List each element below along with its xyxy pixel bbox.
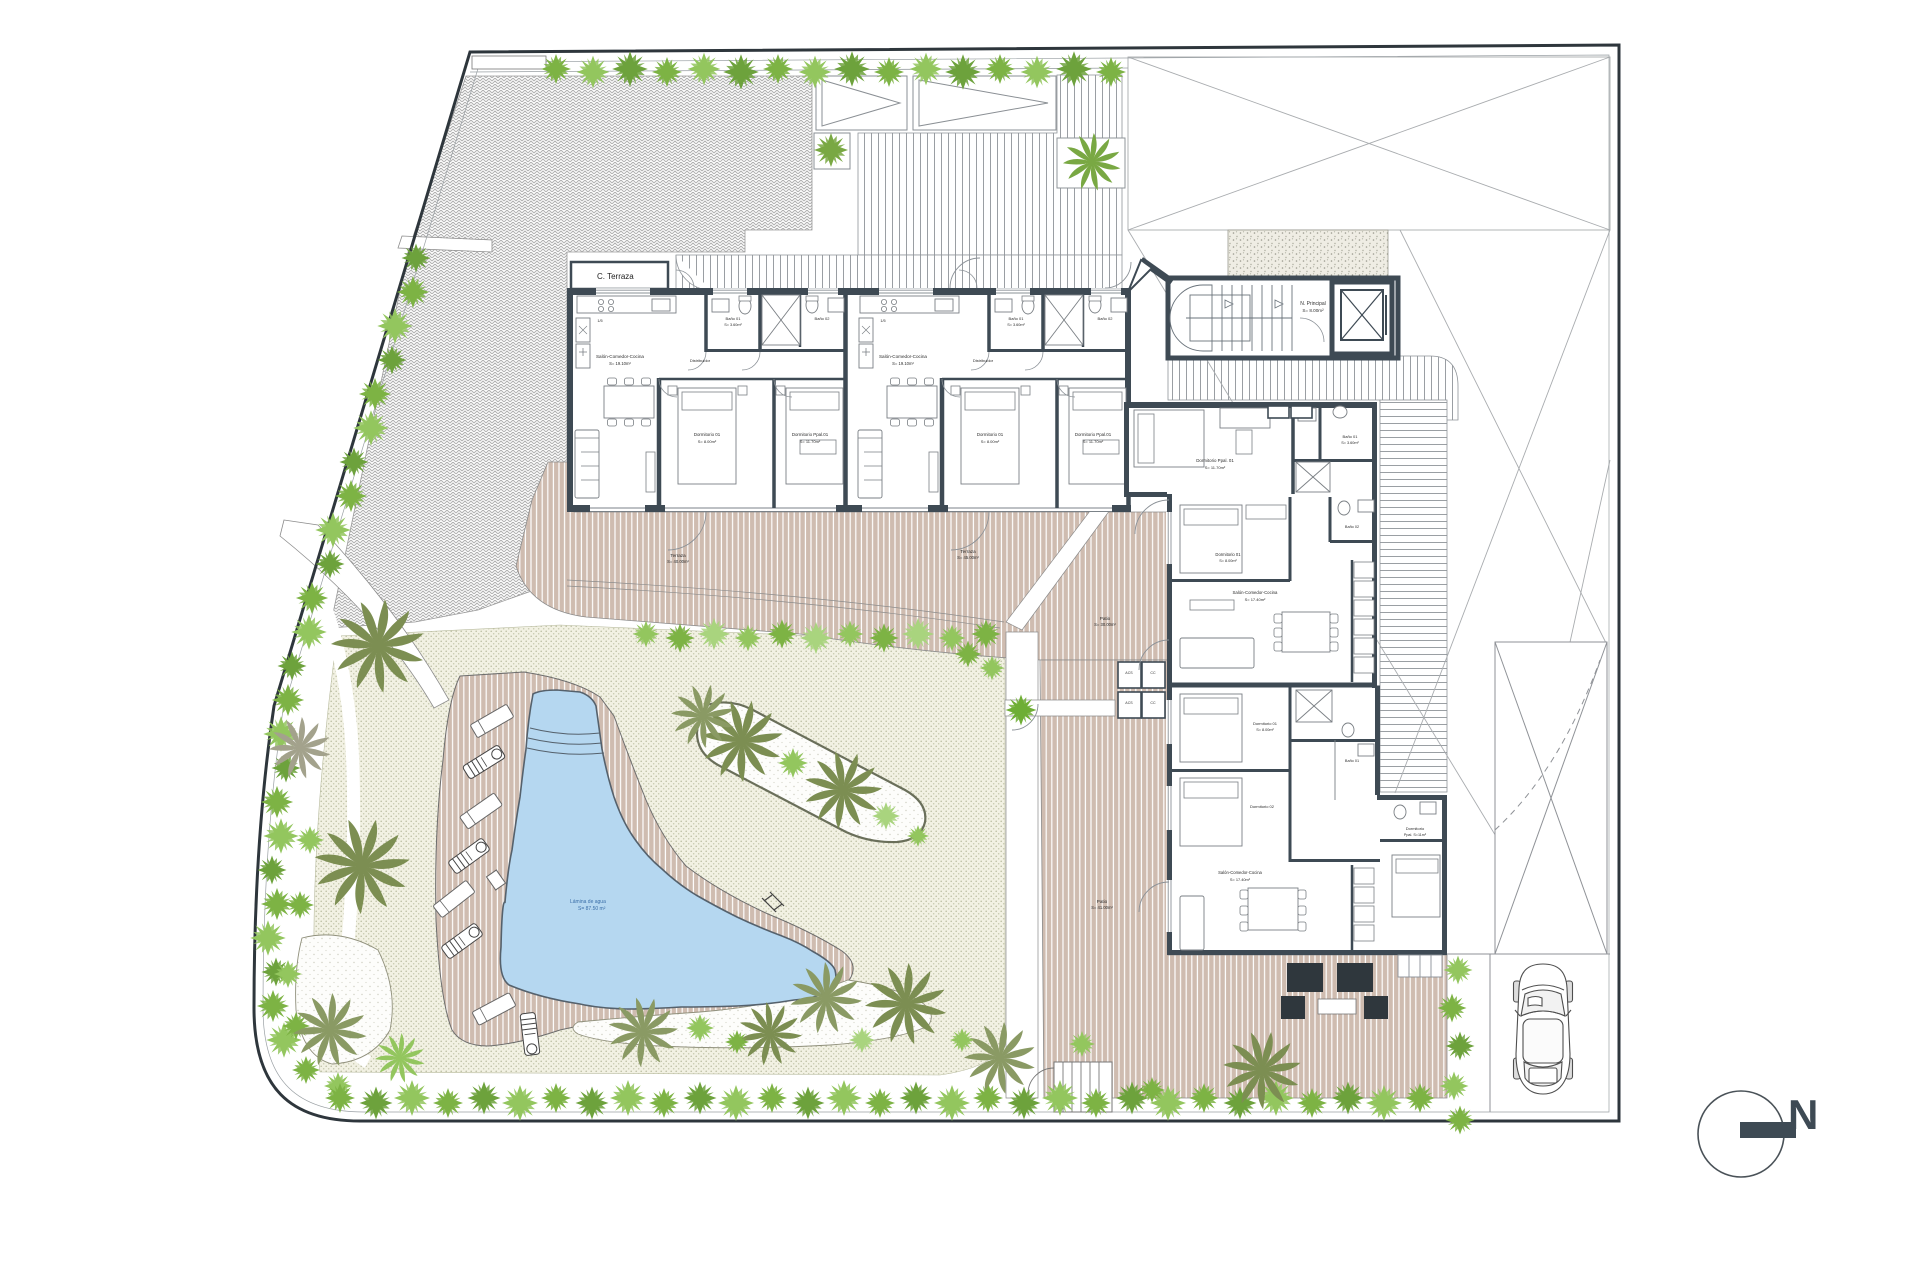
svg-text:S= 3.60m²: S= 3.60m²	[724, 323, 742, 327]
svg-text:Baño 01: Baño 01	[1343, 434, 1359, 439]
svg-text:S= 8.00m²: S= 8.00m²	[1219, 559, 1237, 563]
svg-text:Patio: Patio	[1100, 616, 1111, 621]
svg-text:Baño 01: Baño 01	[1009, 316, 1025, 321]
svg-text:Baño 02: Baño 02	[1345, 525, 1359, 529]
svg-text:S= 87.50 m²: S= 87.50 m²	[578, 906, 606, 912]
svg-text:S= 11.70m²: S= 11.70m²	[1083, 439, 1104, 444]
svg-text:CC: CC	[1150, 671, 1156, 675]
svg-text:Dormitorio 02: Dormitorio 02	[1250, 804, 1275, 809]
svg-text:Dormitorio Ppal.01: Dormitorio Ppal.01	[792, 432, 829, 437]
svg-text:Baño 02: Baño 02	[1098, 316, 1114, 321]
svg-text:ACS: ACS	[1125, 701, 1133, 705]
svg-text:Salón-Comedor-Cocina: Salón-Comedor-Cocina	[1233, 590, 1279, 595]
svg-text:Dormitorio 01: Dormitorio 01	[1215, 552, 1241, 557]
svg-text:1/5: 1/5	[597, 319, 602, 323]
svg-text:1/5: 1/5	[880, 319, 885, 323]
svg-text:S= 8.00m²: S= 8.00m²	[981, 439, 1000, 444]
svg-text:S= 3.60m²: S= 3.60m²	[1341, 441, 1359, 445]
svg-text:Distribuidor: Distribuidor	[690, 358, 711, 363]
svg-text:S= 19.10m²: S= 19.10m²	[892, 361, 914, 366]
svg-text:S= 40.00m²: S= 40.00m²	[667, 559, 689, 564]
svg-text:Dormitorio 01: Dormitorio 01	[1253, 721, 1278, 726]
svg-text:S= 17.40m²: S= 17.40m²	[1245, 597, 1266, 602]
svg-text:CC: CC	[1150, 701, 1156, 705]
svg-text:Baño 01: Baño 01	[1345, 759, 1359, 763]
svg-text:Dormitorio: Dormitorio	[1406, 826, 1425, 831]
svg-text:S= 30.00m²: S= 30.00m²	[1094, 622, 1116, 627]
svg-text:Salón-Comedor-Cocina: Salón-Comedor-Cocina	[1218, 870, 1262, 875]
svg-text:Salón-Comedor-Cocina: Salón-Comedor-Cocina	[879, 354, 927, 359]
svg-text:S= 8.00m²: S= 8.00m²	[1256, 728, 1274, 732]
svg-text:Dormitorio Ppal.01: Dormitorio Ppal.01	[1075, 432, 1112, 437]
svg-text:ACS: ACS	[1125, 671, 1133, 675]
svg-text:S= 11.70m²: S= 11.70m²	[800, 439, 821, 444]
svg-text:N. Principal: N. Principal	[1300, 301, 1326, 307]
svg-text:Lámina de agua: Lámina de agua	[570, 899, 606, 905]
svg-text:Terraza: Terraza	[960, 549, 976, 554]
svg-text:S= 19.10m²: S= 19.10m²	[609, 361, 631, 366]
svg-text:N: N	[1788, 1091, 1818, 1138]
svg-text:Salón-Comedor-Cocina: Salón-Comedor-Cocina	[596, 354, 644, 359]
svg-text:Baño 01: Baño 01	[726, 316, 742, 321]
svg-text:S= 45.00m²: S= 45.00m²	[957, 555, 979, 560]
svg-text:S= 8.00m²: S= 8.00m²	[698, 439, 717, 444]
svg-text:Ppal. S=11m²: Ppal. S=11m²	[1404, 833, 1427, 837]
svg-text:Dormitorio 01: Dormitorio 01	[977, 432, 1004, 437]
svg-text:C. Terraza: C. Terraza	[597, 272, 634, 281]
svg-text:Dormitorio 01: Dormitorio 01	[694, 432, 721, 437]
svg-text:S= 3.60m²: S= 3.60m²	[1007, 323, 1025, 327]
svg-text:S= 41.00m²: S= 41.00m²	[1091, 905, 1113, 910]
svg-text:S= 17.40m²: S= 17.40m²	[1230, 877, 1251, 882]
svg-text:Baño 02: Baño 02	[815, 316, 831, 321]
svg-text:Dormitorio Ppal. 01: Dormitorio Ppal. 01	[1196, 458, 1234, 463]
svg-text:S= 8.00m²: S= 8.00m²	[1302, 308, 1324, 313]
svg-text:Distribuidor: Distribuidor	[973, 358, 994, 363]
svg-text:Patio: Patio	[1097, 899, 1108, 904]
svg-text:S= 11.70m²: S= 11.70m²	[1205, 465, 1226, 470]
svg-text:Terraza: Terraza	[670, 553, 686, 558]
